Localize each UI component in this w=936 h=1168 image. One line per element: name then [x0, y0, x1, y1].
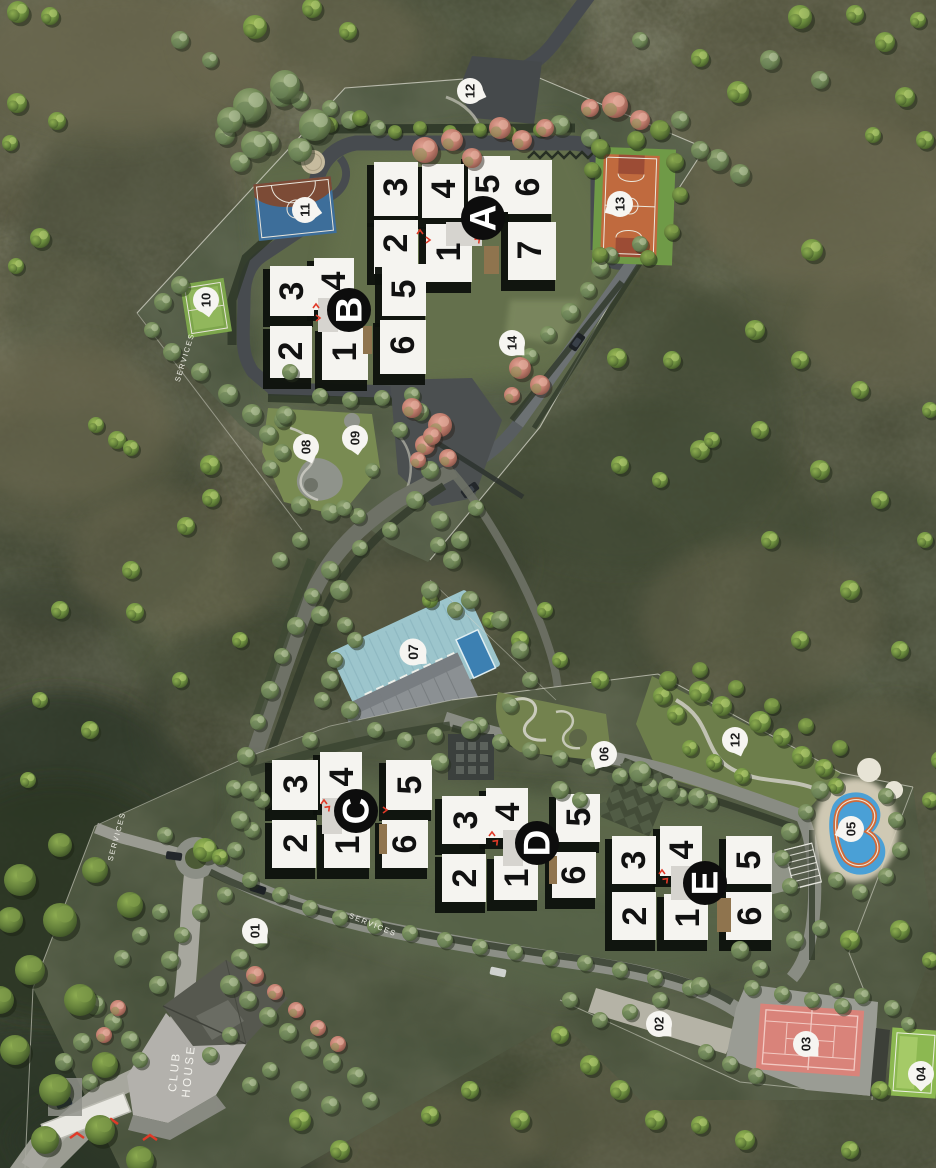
svg-text:5: 5: [469, 175, 507, 194]
svg-text:3: 3: [377, 178, 415, 197]
svg-text:6: 6: [731, 907, 769, 926]
svg-text:02: 02: [652, 1017, 667, 1031]
svg-text:13: 13: [613, 197, 628, 211]
svg-text:2: 2: [277, 834, 315, 853]
svg-text:D: D: [517, 830, 558, 857]
svg-text:6: 6: [509, 178, 547, 197]
svg-text:5: 5: [391, 776, 429, 795]
svg-text:3: 3: [273, 282, 311, 301]
svg-text:03: 03: [799, 1037, 814, 1051]
svg-text:5: 5: [730, 851, 768, 870]
svg-text:1: 1: [430, 243, 468, 262]
svg-text:4: 4: [323, 767, 361, 786]
svg-text:E: E: [685, 871, 726, 896]
svg-text:3: 3: [447, 811, 485, 830]
svg-text:07: 07: [405, 644, 421, 660]
svg-text:1: 1: [669, 909, 707, 928]
svg-text:4: 4: [315, 271, 353, 290]
svg-text:3: 3: [277, 775, 315, 794]
svg-text:6: 6: [386, 835, 424, 854]
svg-text:14: 14: [505, 335, 520, 350]
svg-text:01: 01: [248, 924, 263, 938]
svg-text:C: C: [336, 798, 377, 825]
svg-text:2: 2: [377, 234, 415, 253]
svg-text:12: 12: [463, 84, 478, 98]
svg-text:5: 5: [385, 280, 423, 299]
svg-text:2: 2: [616, 907, 654, 926]
svg-text:10: 10: [199, 293, 214, 307]
svg-text:5: 5: [560, 808, 598, 827]
svg-text:1: 1: [498, 869, 536, 888]
svg-text:7: 7: [511, 241, 549, 260]
svg-text:4: 4: [425, 179, 463, 198]
svg-text:B: B: [329, 297, 370, 324]
svg-text:2: 2: [272, 342, 310, 361]
svg-text:09: 09: [348, 431, 363, 445]
svg-text:2: 2: [446, 869, 484, 888]
svg-text:11: 11: [298, 203, 313, 217]
svg-text:6: 6: [384, 336, 422, 355]
svg-text:4: 4: [663, 840, 701, 859]
svg-text:12: 12: [728, 733, 743, 747]
svg-text:1: 1: [329, 836, 367, 855]
svg-text:06: 06: [597, 747, 612, 761]
svg-text:4: 4: [489, 802, 527, 821]
svg-text:3: 3: [615, 851, 653, 870]
svg-text:05: 05: [844, 822, 859, 836]
svg-text:6: 6: [555, 866, 593, 885]
svg-text:1: 1: [326, 343, 364, 362]
svg-text:04: 04: [914, 1066, 929, 1081]
svg-text:A: A: [463, 205, 504, 232]
svg-text:08: 08: [299, 440, 314, 454]
